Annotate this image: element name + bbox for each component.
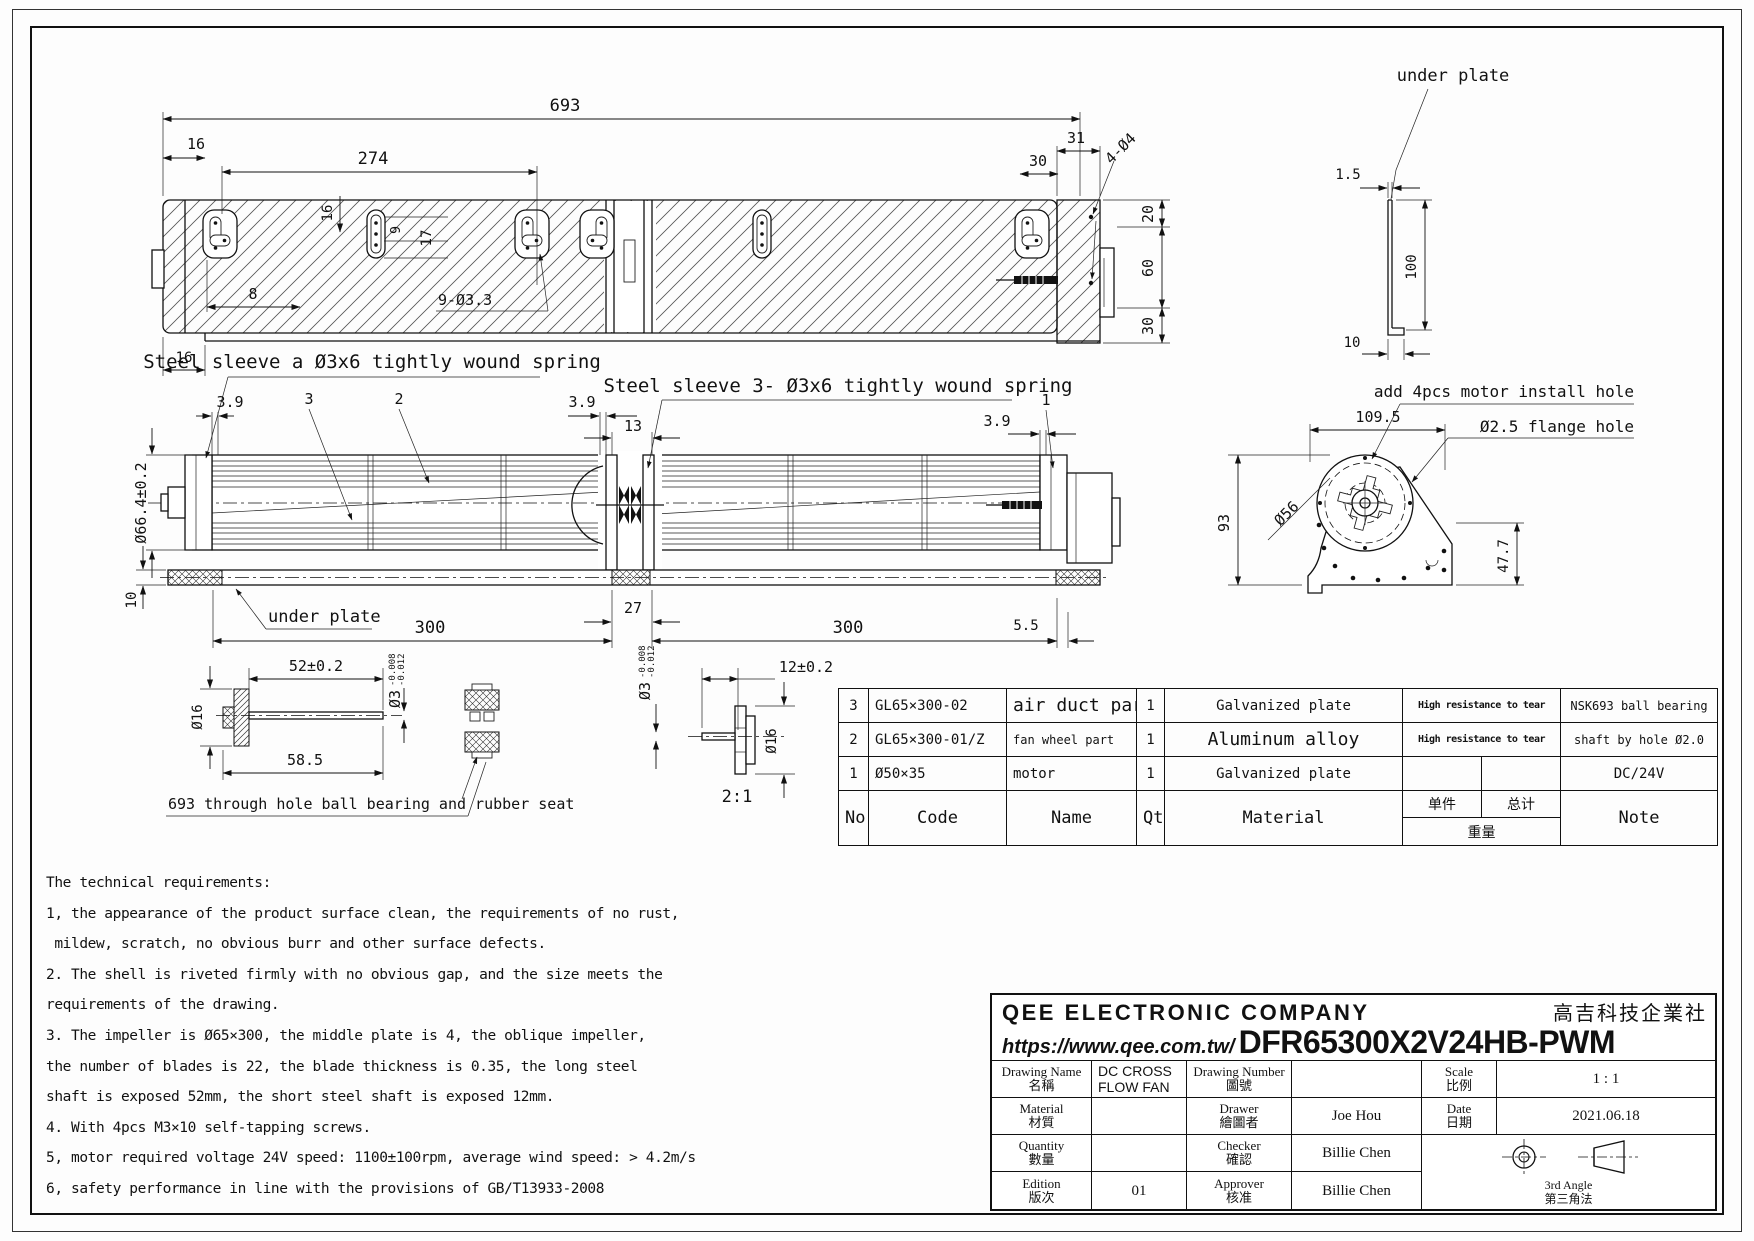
dim-12: 12±0.2 bbox=[779, 658, 833, 676]
front-view-fan-assembly bbox=[148, 451, 1120, 585]
table-header-row: No Code Name Qty Material 单件 总计 Note bbox=[839, 791, 1718, 818]
bom-header-name: Name bbox=[1007, 791, 1137, 846]
dim-58.5: 58.5 bbox=[287, 751, 323, 769]
dim-dia16-long: Ø16 bbox=[190, 704, 206, 729]
svg-text:-0.012: -0.012 bbox=[647, 645, 657, 678]
bom-name: fan wheel part bbox=[1007, 723, 1137, 757]
title-block-grid: Drawing Name名稱 DC CROSS FLOW FAN Drawing… bbox=[992, 1061, 1715, 1208]
dim-10-detail: 10 bbox=[1344, 335, 1361, 351]
field-checker-value: Billie Chen bbox=[1292, 1135, 1422, 1172]
field-edition-label: Edition版次 bbox=[992, 1172, 1092, 1209]
field-checker-label: Checker確認 bbox=[1187, 1135, 1292, 1172]
tech-line: shaft is exposed 52mm, the short steel s… bbox=[46, 1082, 686, 1113]
under-plate-profile-detail: under plate 1.5 100 10 bbox=[1335, 66, 1509, 360]
field-drawer-label: Drawer繪圖者 bbox=[1187, 1098, 1292, 1135]
callout-3: 3 bbox=[304, 390, 313, 408]
bom-weight-note: High resistance to tear bbox=[1403, 723, 1561, 757]
bom-qty: 1 bbox=[1137, 757, 1165, 791]
dim-60: 60 bbox=[1139, 259, 1157, 277]
label-bearing-note: 693 through hole ball bearing and rubber… bbox=[168, 795, 574, 813]
dim-100: 100 bbox=[1404, 254, 1420, 279]
dim-3.9-right: 3.9 bbox=[983, 412, 1010, 430]
bom-no: 1 bbox=[839, 757, 869, 791]
company-url: https://www.qee.com.tw/ bbox=[1002, 1036, 1235, 1059]
bearing-detail: 693 through hole ball bearing and rubber… bbox=[166, 684, 574, 816]
dim-5.5: 5.5 bbox=[1013, 618, 1038, 634]
third-angle-target-icon bbox=[1498, 1137, 1550, 1177]
bom-header-code: Code bbox=[869, 791, 1007, 846]
tech-line: 6, safety performance in line with the p… bbox=[46, 1174, 686, 1205]
tech-line: 2. The shell is riveted firmly with no o… bbox=[46, 960, 686, 991]
label-9-dia33-holes: 9-Ø3.3 bbox=[438, 291, 492, 309]
svg-text:-0.012: -0.012 bbox=[397, 653, 407, 686]
third-angle-caption: 3rd Angle 第三角法 bbox=[1544, 1179, 1592, 1207]
field-scale-label: Scale比例 bbox=[1422, 1061, 1497, 1098]
bom-material: Galvanized plate bbox=[1165, 689, 1403, 723]
short-shaft-detail: 12±0.2 Ø16 Ø3 -0.008 -0.012 2:1 bbox=[636, 645, 833, 807]
dim-300-left: 300 bbox=[415, 618, 446, 638]
field-date-label: Date日期 bbox=[1422, 1098, 1497, 1135]
dim-dia16-short: Ø16 bbox=[764, 728, 780, 753]
label-motor-install-hole: add 4pcs motor install hole bbox=[1374, 382, 1634, 401]
dim-3.9-mid: 3.9 bbox=[568, 393, 595, 411]
third-angle-cone-icon bbox=[1576, 1137, 1640, 1177]
dim-10-left: 10 bbox=[124, 592, 140, 609]
bom-name: motor bbox=[1007, 757, 1137, 791]
dim-300-right: 300 bbox=[833, 618, 864, 638]
bom-no: 3 bbox=[839, 689, 869, 723]
field-approver-value: Billie Chen bbox=[1292, 1172, 1422, 1209]
bom-note: shaft by hole Ø2.0 bbox=[1561, 723, 1718, 757]
bom-material: Aluminum alloy bbox=[1165, 723, 1403, 757]
table-row: 3 GL65×300-02 air duct part 1 Galvanized… bbox=[839, 689, 1718, 723]
svg-text:Ø3: Ø3 bbox=[636, 682, 654, 700]
dim-9: 9 bbox=[389, 226, 404, 234]
dim-1.5: 1.5 bbox=[1335, 167, 1360, 183]
drawing-sheet: 693 16 274 31 30 4-Ø4 20 60 30 16 9 bbox=[0, 0, 1754, 1241]
label-detail-scale-2-1: 2:1 bbox=[722, 787, 753, 807]
bom-header-unit-weight: 单件 bbox=[1403, 791, 1482, 818]
field-approver-label: Approver核准 bbox=[1187, 1172, 1292, 1209]
dim-31: 31 bbox=[1067, 129, 1085, 147]
dim-93: 93 bbox=[1215, 514, 1233, 532]
tech-line: the number of blades is 22, the blade th… bbox=[46, 1052, 686, 1083]
dim-13: 13 bbox=[624, 417, 642, 435]
dim-30-right: 30 bbox=[1139, 317, 1157, 335]
dim-27: 27 bbox=[624, 599, 642, 617]
bom-weight-total-empty bbox=[1482, 757, 1561, 791]
label-flange-hole: Ø2.5 flange hole bbox=[1480, 417, 1634, 436]
bom-header-qty: Qty bbox=[1137, 791, 1165, 846]
tech-line: requirements of the drawing. bbox=[46, 990, 686, 1021]
dim-52: 52±0.2 bbox=[289, 657, 343, 675]
bom-header-weight: 重量 bbox=[1403, 818, 1561, 846]
bom-note: DC/24V bbox=[1561, 757, 1718, 791]
dim-dia56: Ø56 bbox=[1271, 498, 1303, 530]
field-edition-value: 01 bbox=[1092, 1172, 1187, 1209]
title-block-company-band: QEE ELECTRONIC COMPANY 高吉科技企業社 https://w… bbox=[992, 995, 1715, 1061]
tech-line: mildew, scratch, no obvious burr and oth… bbox=[46, 929, 686, 960]
company-name: QEE ELECTRONIC COMPANY bbox=[1002, 1000, 1370, 1026]
title-block: QEE ELECTRONIC COMPANY 高吉科技企業社 https://w… bbox=[990, 993, 1717, 1211]
bom-weight-note: High resistance to tear bbox=[1403, 689, 1561, 723]
table-row: 2 GL65×300-01/Z fan wheel part 1 Aluminu… bbox=[839, 723, 1718, 757]
field-drawer-value: Joe Hou bbox=[1292, 1098, 1422, 1135]
bom-code: GL65×300-02 bbox=[869, 689, 1007, 723]
label-4-dia4-holes: 4-Ø4 bbox=[1101, 129, 1139, 167]
field-drawing-name-value: DC CROSS FLOW FAN bbox=[1092, 1061, 1187, 1098]
bom-note: NSK693 ball bearing bbox=[1561, 689, 1718, 723]
dim-16-top: 16 bbox=[187, 135, 205, 153]
dim-109.5: 109.5 bbox=[1355, 408, 1400, 426]
label-under-plate-front: under plate bbox=[268, 607, 381, 627]
svg-text:Ø3: Ø3 bbox=[386, 690, 404, 708]
bom-qty: 1 bbox=[1137, 689, 1165, 723]
field-quantity-label: Quantity數量 bbox=[992, 1135, 1092, 1172]
label-steel-sleeve-a: Steel sleeve a Ø3x6 tightly wound spring bbox=[143, 351, 601, 373]
dim-dia3-tolerance-long: Ø3 -0.008 -0.012 bbox=[386, 653, 407, 708]
field-quantity-value bbox=[1092, 1135, 1187, 1172]
dim-3.9-left: 3.9 bbox=[216, 393, 243, 411]
dim-47.7: 47.7 bbox=[1496, 539, 1512, 573]
field-drawing-name-label: Drawing Name名稱 bbox=[992, 1061, 1092, 1098]
tech-line: 5, motor required voltage 24V speed: 110… bbox=[46, 1143, 686, 1174]
top-view-air-duct bbox=[152, 200, 1114, 343]
dim-274: 274 bbox=[358, 149, 389, 169]
bom-weight-unit-empty bbox=[1403, 757, 1482, 791]
dim-16-slot: 16 bbox=[320, 205, 336, 222]
bom-header-total-weight: 总计 bbox=[1482, 791, 1561, 818]
part-number: DFR65300X2V24HB-PWM bbox=[1239, 1024, 1615, 1061]
callout-1: 1 bbox=[1041, 391, 1050, 409]
field-material-value bbox=[1092, 1098, 1187, 1135]
tech-line: 3. The impeller is Ø65×300, the middle p… bbox=[46, 1021, 686, 1052]
bom-qty: 1 bbox=[1137, 723, 1165, 757]
long-shaft-detail: 52±0.2 Ø16 58.5 Ø3 -0.008 -0.012 bbox=[190, 653, 407, 780]
bom-material: Galvanized plate bbox=[1165, 757, 1403, 791]
bom-header-material: Material bbox=[1165, 791, 1403, 846]
bom-code: GL65×300-01/Z bbox=[869, 723, 1007, 757]
bom-no: 2 bbox=[839, 723, 869, 757]
field-drawing-number-value bbox=[1292, 1061, 1422, 1098]
field-material-label: Material材質 bbox=[992, 1098, 1092, 1135]
dim-30-top: 30 bbox=[1029, 152, 1047, 170]
callout-2: 2 bbox=[394, 390, 403, 408]
projection-symbol-cell: 3rd Angle 第三角法 bbox=[1422, 1135, 1715, 1209]
label-under-plate-detail: under plate bbox=[1397, 66, 1510, 86]
field-drawing-number-label: Drawing Number圖號 bbox=[1187, 1061, 1292, 1098]
dim-693: 693 bbox=[550, 96, 581, 116]
field-scale-value: 1 : 1 bbox=[1497, 1061, 1715, 1098]
table-row: 1 Ø50×35 motor 1 Galvanized plate DC/24V bbox=[839, 757, 1718, 791]
dim-17: 17 bbox=[419, 230, 435, 247]
tech-line: 4. With 4pcs M3×10 self-tapping screws. bbox=[46, 1113, 686, 1144]
bill-of-materials-table: 3 GL65×300-02 air duct part 1 Galvanized… bbox=[838, 688, 1718, 846]
dim-dia66.4: Ø66.4±0.2 bbox=[132, 462, 150, 543]
tech-title: The technical requirements: bbox=[46, 868, 686, 899]
bom-name: air duct part bbox=[1007, 689, 1137, 723]
dim-dia3-tolerance-short: Ø3 -0.008 -0.012 bbox=[636, 645, 657, 700]
tech-line: 1, the appearance of the product surface… bbox=[46, 899, 686, 930]
label-steel-sleeve-3: Steel sleeve 3- Ø3x6 tightly wound sprin… bbox=[604, 375, 1073, 397]
dim-8: 8 bbox=[248, 285, 257, 303]
technical-requirements: The technical requirements: 1, the appea… bbox=[46, 868, 686, 1205]
bom-header-note: Note bbox=[1561, 791, 1718, 846]
motor-end-view: 109.5 93 Ø56 47.7 add 4pcs motor install… bbox=[1215, 382, 1634, 593]
field-date-value: 2021.06.18 bbox=[1497, 1098, 1715, 1135]
dim-20: 20 bbox=[1139, 205, 1157, 223]
bom-header-no: No bbox=[839, 791, 869, 846]
bom-code: Ø50×35 bbox=[869, 757, 1007, 791]
company-name-chinese: 高吉科技企業社 bbox=[1553, 997, 1707, 1026]
